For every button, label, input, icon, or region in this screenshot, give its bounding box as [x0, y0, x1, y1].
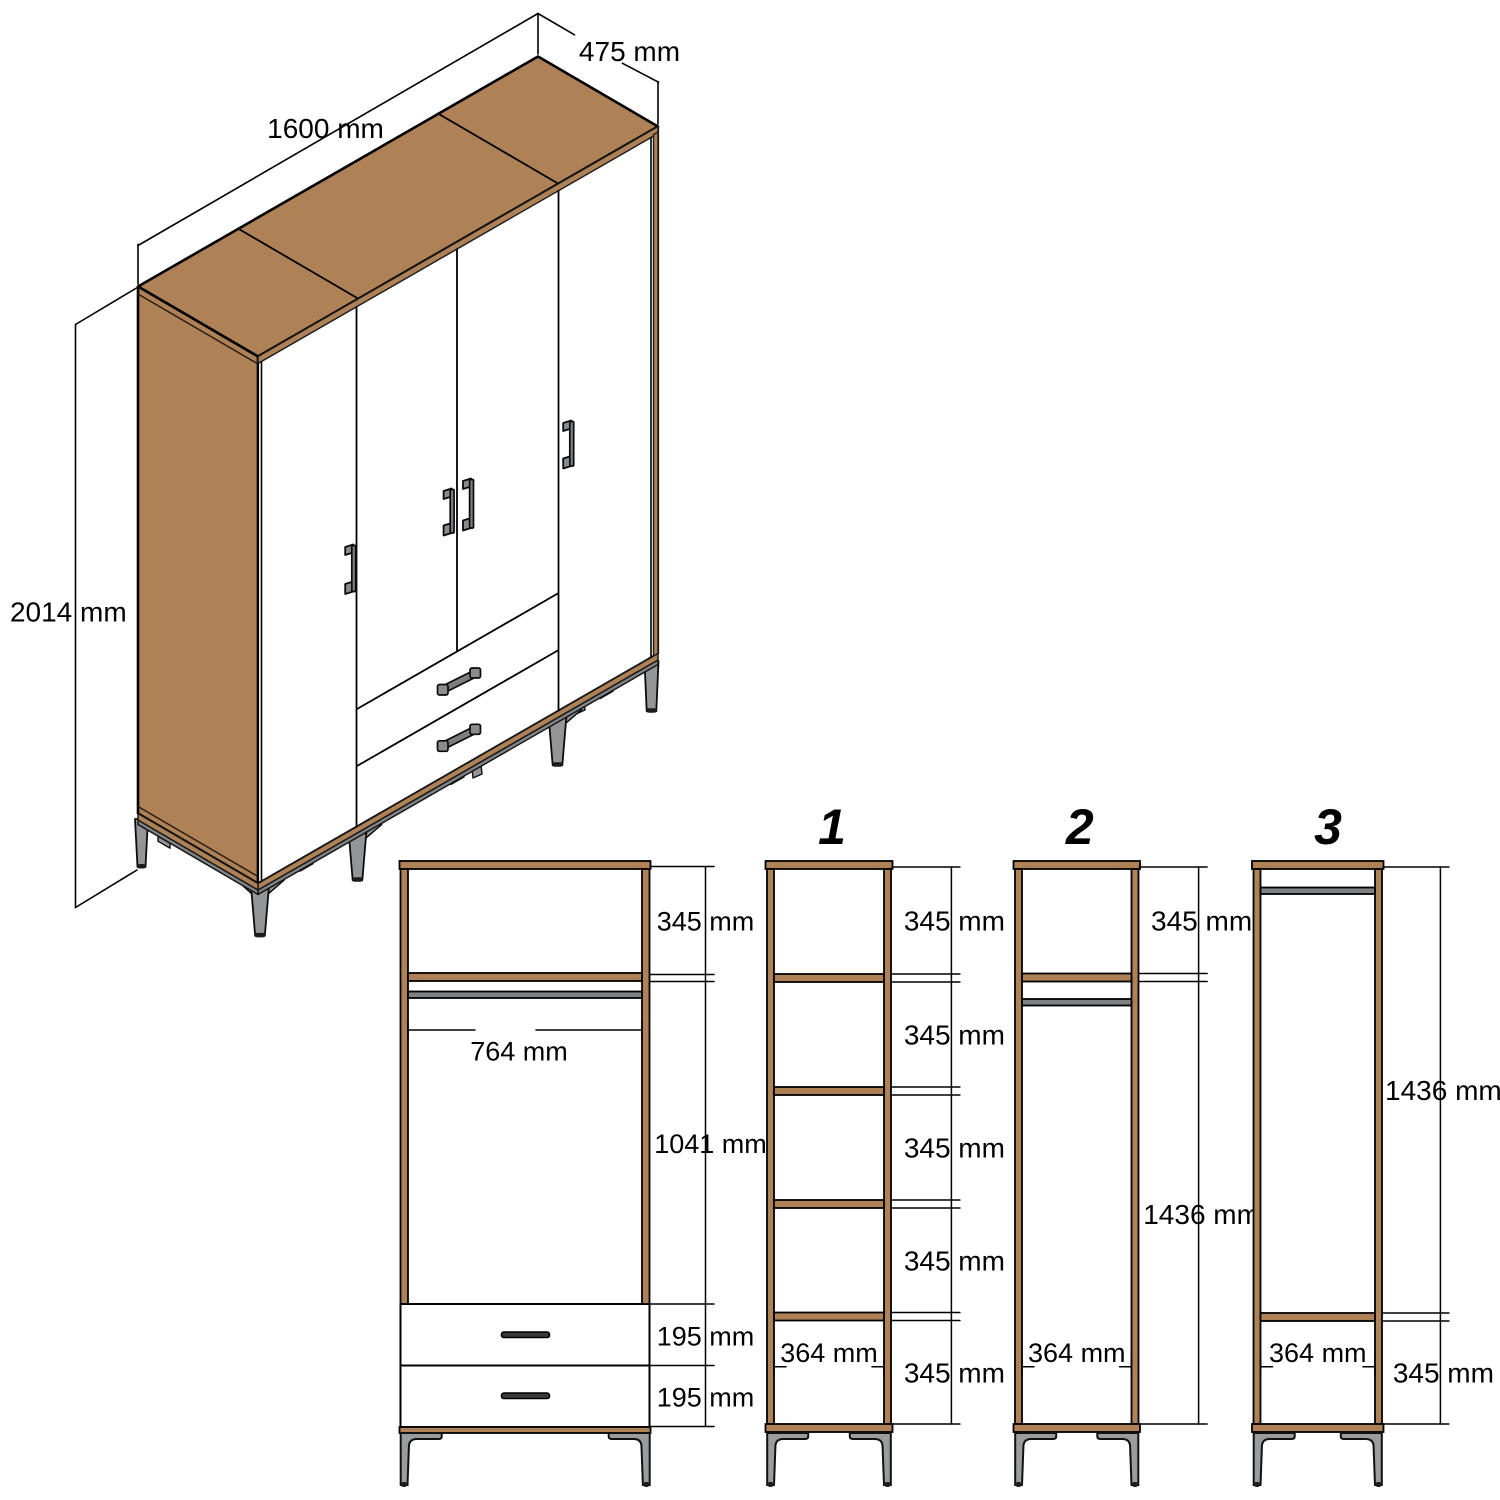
svg-text:345 mm: 345 mm: [904, 906, 1005, 937]
svg-text:1436 mm: 1436 mm: [1143, 1199, 1260, 1230]
svg-text:3: 3: [1314, 799, 1342, 855]
svg-text:345 mm: 345 mm: [904, 1358, 1005, 1389]
svg-text:1041 mm: 1041 mm: [654, 1129, 767, 1159]
svg-text:2014 mm: 2014 mm: [10, 597, 127, 628]
svg-text:764 mm: 764 mm: [470, 1037, 568, 1067]
svg-text:345 mm: 345 mm: [657, 907, 755, 937]
svg-text:1436 mm: 1436 mm: [1385, 1075, 1500, 1106]
svg-text:1600 mm: 1600 mm: [267, 113, 384, 144]
svg-text:345 mm: 345 mm: [1151, 906, 1252, 937]
svg-text:345 mm: 345 mm: [1393, 1358, 1494, 1389]
svg-text:345 mm: 345 mm: [904, 1020, 1005, 1051]
svg-text:364 mm: 364 mm: [1028, 1338, 1126, 1368]
svg-text:345 mm: 345 mm: [904, 1133, 1005, 1164]
svg-text:364 mm: 364 mm: [1269, 1338, 1367, 1368]
svg-text:345 mm: 345 mm: [904, 1246, 1005, 1277]
svg-text:195 mm: 195 mm: [657, 1382, 755, 1412]
svg-text:364 mm: 364 mm: [780, 1338, 878, 1368]
svg-text:195 mm: 195 mm: [657, 1321, 755, 1351]
svg-text:1: 1: [818, 799, 846, 855]
svg-text:475 mm: 475 mm: [579, 36, 680, 67]
svg-text:2: 2: [1065, 799, 1094, 855]
